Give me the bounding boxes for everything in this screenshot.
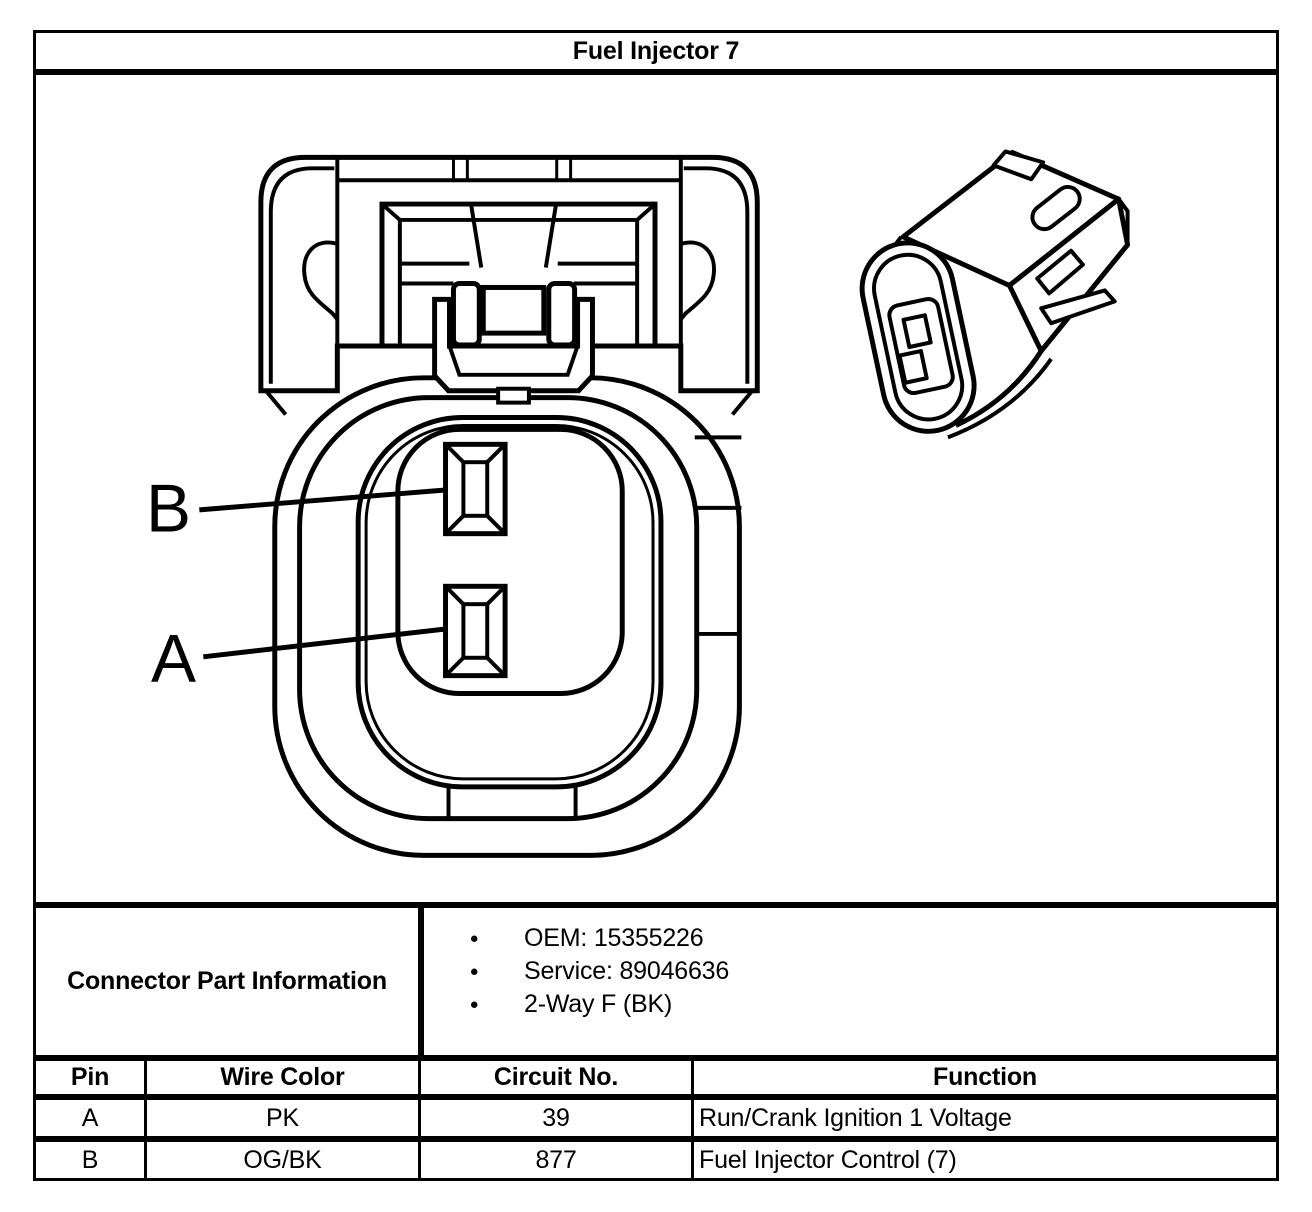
pin-table-row-b: B OG/BK 877 Fuel Injector Control (7)	[33, 1139, 1279, 1181]
bullet-item-service: ● Service: 89046636	[424, 955, 1276, 988]
pin-table-row-a: A PK 39 Run/Crank Ignition 1 Voltage	[33, 1097, 1279, 1139]
bullet-icon: ●	[424, 963, 524, 980]
header-cell-wire-color: Wire Color	[147, 1061, 421, 1094]
bullet-item-oem: ● OEM: 15355226	[424, 922, 1276, 955]
pin-b-label: B	[146, 472, 191, 547]
pin-b-socket	[446, 444, 506, 533]
connector-line-drawing: B A	[36, 75, 1276, 902]
cell-circuit-no: 39	[421, 1100, 694, 1136]
cell-circuit-no: 877	[421, 1142, 694, 1178]
cell-function: Run/Crank Ignition 1 Voltage	[694, 1100, 1276, 1136]
bullet-icon: ●	[424, 996, 524, 1013]
cell-pin: B	[36, 1142, 147, 1178]
connector-front-view	[275, 378, 742, 856]
bullet-item-way: ● 2-Way F (BK)	[424, 988, 1276, 1021]
title-bar: Fuel Injector 7	[33, 30, 1279, 72]
header-cell-pin: Pin	[36, 1061, 147, 1094]
cell-wire-color: PK	[147, 1100, 421, 1136]
cell-function: Fuel Injector Control (7)	[694, 1142, 1276, 1178]
pin-a-label: A	[151, 622, 196, 697]
connector-part-information-label: Connector Part Information	[33, 905, 421, 1058]
cell-pin: A	[36, 1100, 147, 1136]
header-cell-function: Function	[694, 1061, 1276, 1094]
diagram-panel: B A	[33, 72, 1279, 905]
page-title: Fuel Injector 7	[573, 37, 739, 66]
header-cell-circuit-no: Circuit No.	[421, 1061, 694, 1094]
bullet-icon: ●	[424, 930, 524, 947]
connector-diagram-page: Fuel Injector 7	[0, 0, 1312, 1212]
cell-wire-color: OG/BK	[147, 1142, 421, 1178]
pin-table-header-row: Pin Wire Color Circuit No. Function	[33, 1058, 1279, 1097]
connector-part-information-values: ● OEM: 15355226 ● Service: 89046636 ● 2-…	[421, 905, 1279, 1058]
connector-3d-view	[854, 151, 1128, 439]
pin-a-socket	[446, 586, 506, 675]
